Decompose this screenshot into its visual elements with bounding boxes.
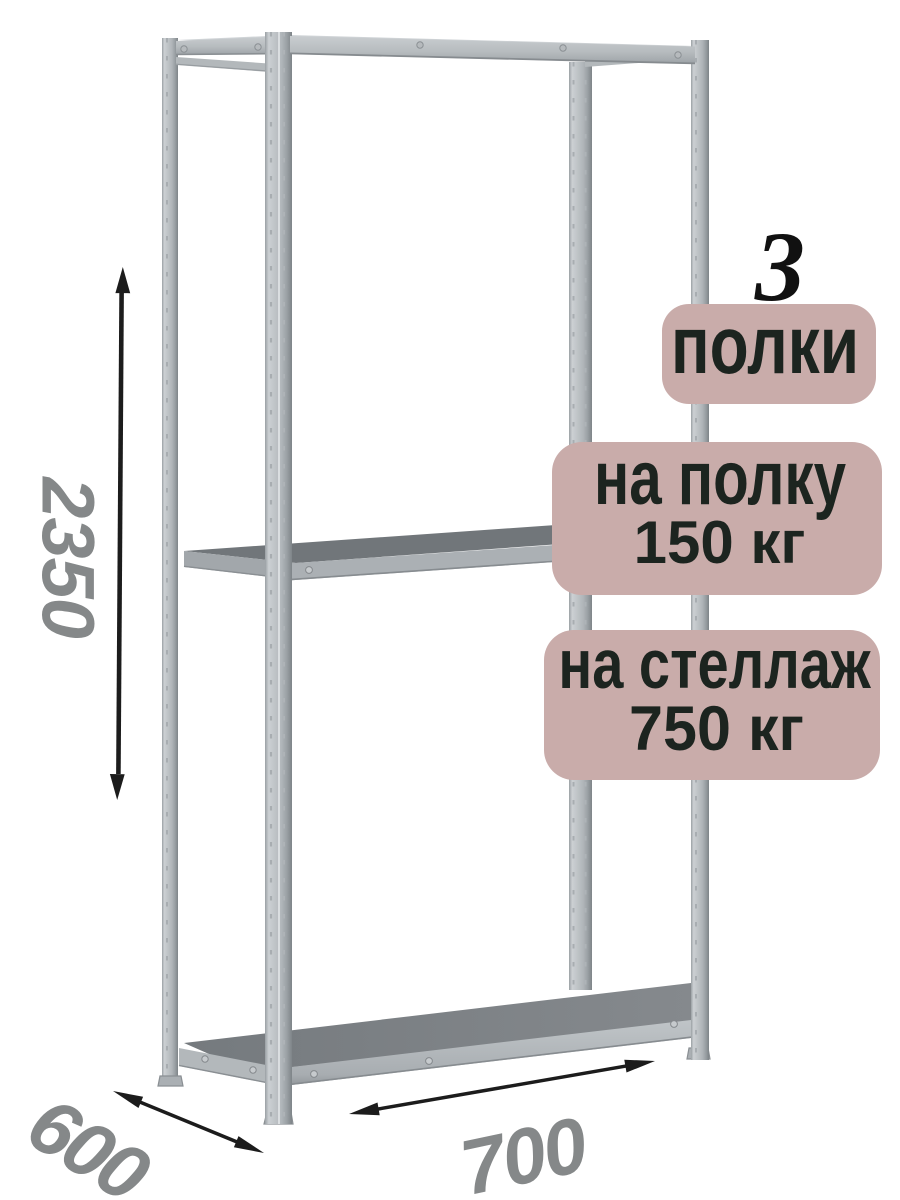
svg-text:700: 700 (453, 1100, 594, 1200)
svg-text:750 кг: 750 кг (629, 694, 804, 764)
svg-text:150 кг: 150 кг (634, 509, 806, 576)
svg-text:2350: 2350 (27, 475, 110, 638)
svg-text:на стеллаж: на стеллаж (558, 626, 871, 703)
svg-text:полки: полки (671, 298, 859, 391)
